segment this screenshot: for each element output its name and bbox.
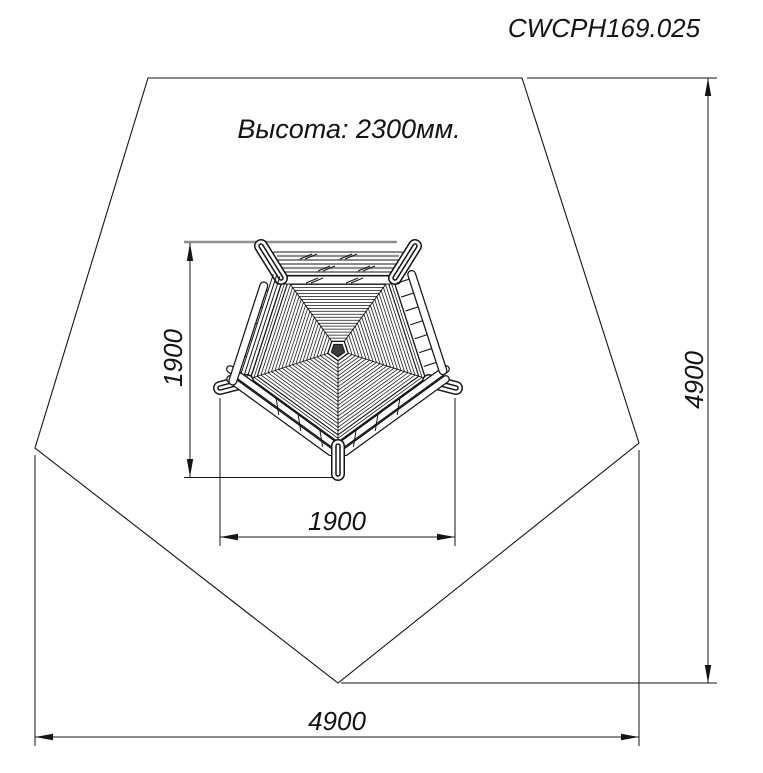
dimension-label-unit-depth: 1900 xyxy=(158,329,188,387)
playhouse-top-view xyxy=(220,246,456,474)
arrowhead-right-icon xyxy=(437,534,455,540)
height-note: Высота: 2300мм. xyxy=(237,114,460,144)
technical-drawing-page: CWCPH169.025 Высота: 2300мм. 4900 4900 1… xyxy=(0,0,763,773)
plan-drawing: CWCPH169.025 Высота: 2300мм. 4900 4900 1… xyxy=(0,0,763,773)
arrowhead-down-icon xyxy=(705,665,711,683)
arrowhead-left-icon xyxy=(220,534,238,540)
dimension-label-unit-width: 1900 xyxy=(308,506,366,536)
dimension-label-zone-depth: 4900 xyxy=(679,351,709,409)
safety-zone-outline xyxy=(35,78,639,683)
drawing-title: CWCPH169.025 xyxy=(508,13,701,43)
dimension-label-zone-width: 4900 xyxy=(308,706,366,736)
safety-zone xyxy=(35,78,639,683)
arrowhead-down-icon xyxy=(187,459,193,477)
dimension-zone-width xyxy=(35,450,639,746)
arrowhead-left-icon xyxy=(35,734,53,740)
arrowhead-up-icon xyxy=(705,78,711,96)
arrowhead-up-icon xyxy=(187,243,193,261)
arrowhead-right-icon xyxy=(621,734,639,740)
